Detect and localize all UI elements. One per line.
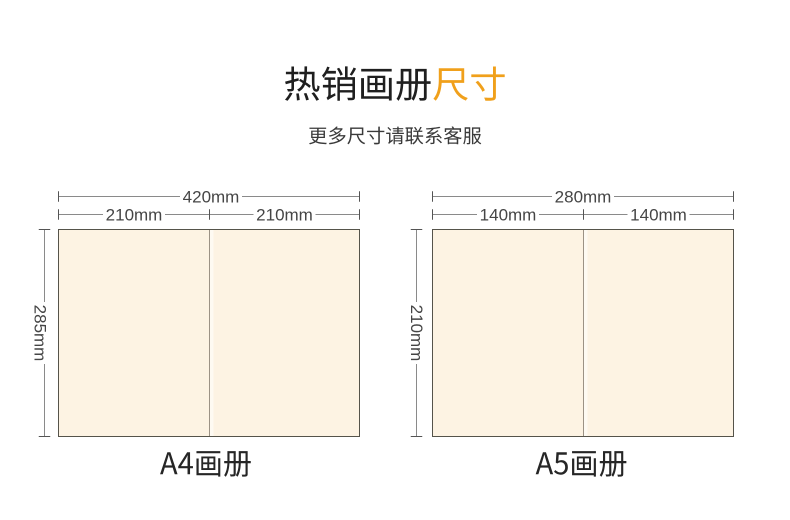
- svg-text:210mm: 210mm: [256, 206, 313, 225]
- svg-text:210mm: 210mm: [106, 206, 163, 225]
- svg-text:210mm: 210mm: [407, 305, 426, 362]
- svg-text:140mm: 140mm: [630, 206, 687, 225]
- svg-text:420mm: 420mm: [183, 188, 240, 207]
- svg-text:280mm: 280mm: [555, 188, 612, 207]
- svg-text:285mm: 285mm: [31, 305, 50, 362]
- svg-text:140mm: 140mm: [480, 206, 537, 225]
